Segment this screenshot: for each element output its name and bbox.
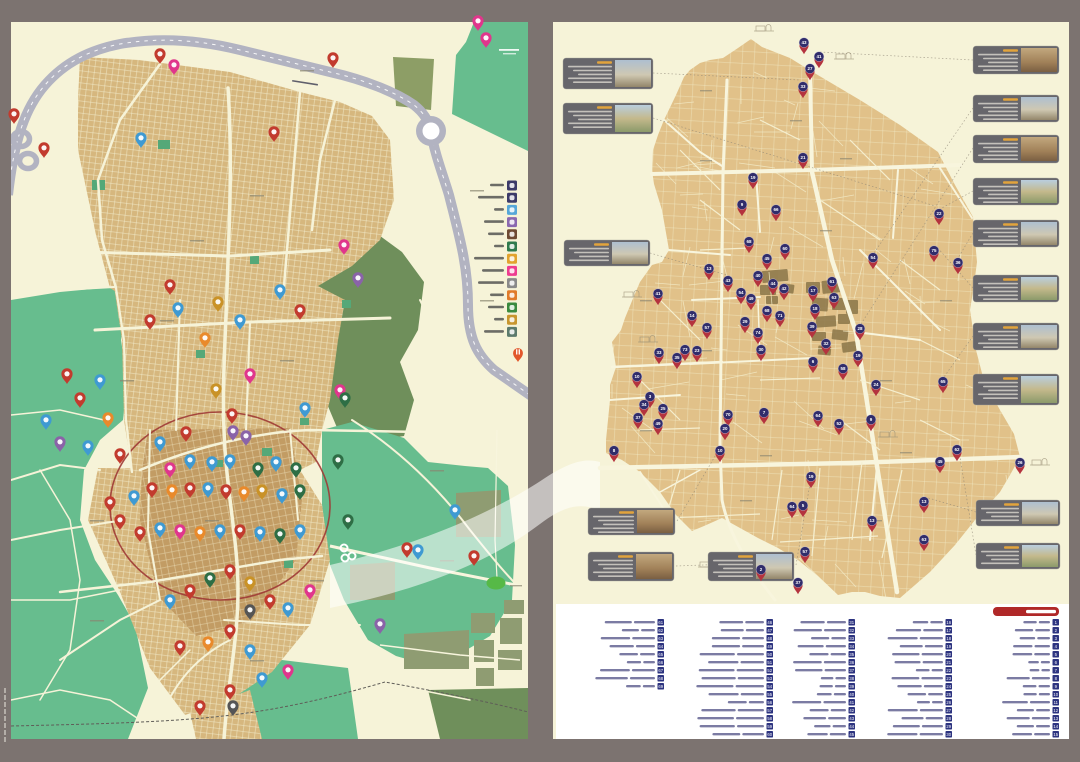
- svg-text:27: 27: [946, 708, 951, 713]
- svg-text:13: 13: [921, 499, 927, 504]
- svg-text:10: 10: [717, 448, 723, 453]
- svg-text:44: 44: [770, 281, 776, 286]
- svg-text:53: 53: [767, 676, 772, 681]
- svg-text:49: 49: [767, 644, 772, 649]
- svg-text:68: 68: [746, 239, 752, 244]
- svg-text:61: 61: [829, 279, 835, 284]
- svg-text:19: 19: [750, 175, 756, 180]
- svg-text:33: 33: [656, 350, 662, 355]
- svg-text:30: 30: [946, 732, 951, 737]
- svg-text:48: 48: [767, 636, 772, 641]
- svg-text:21: 21: [800, 155, 806, 160]
- svg-text:39: 39: [809, 324, 815, 329]
- svg-text:52: 52: [767, 668, 772, 673]
- svg-text:60: 60: [782, 246, 788, 251]
- svg-text:14: 14: [1053, 724, 1058, 729]
- svg-text:42: 42: [849, 708, 854, 713]
- svg-text:43: 43: [801, 40, 807, 45]
- svg-text:42: 42: [781, 286, 787, 291]
- svg-text:57: 57: [767, 708, 772, 713]
- svg-text:56: 56: [767, 700, 772, 705]
- svg-text:68: 68: [658, 676, 663, 681]
- svg-text:50: 50: [767, 652, 772, 657]
- svg-text:66: 66: [773, 207, 779, 212]
- svg-text:34: 34: [641, 402, 647, 407]
- svg-text:22: 22: [936, 211, 942, 216]
- svg-text:41: 41: [849, 700, 854, 705]
- svg-text:40: 40: [849, 692, 854, 697]
- svg-text:63: 63: [658, 636, 663, 641]
- svg-text:16: 16: [946, 620, 951, 625]
- svg-text:37: 37: [849, 668, 854, 673]
- svg-text:14: 14: [689, 313, 695, 318]
- svg-text:29: 29: [946, 724, 951, 729]
- svg-text:62: 62: [954, 447, 960, 452]
- svg-text:36: 36: [849, 660, 854, 665]
- svg-text:19: 19: [855, 353, 861, 358]
- svg-text:19: 19: [946, 644, 951, 649]
- svg-text:32: 32: [823, 341, 829, 346]
- svg-text:54: 54: [870, 255, 876, 260]
- svg-text:19: 19: [808, 474, 814, 479]
- svg-text:15: 15: [1053, 732, 1058, 737]
- svg-text:49: 49: [748, 296, 754, 301]
- svg-text:63: 63: [831, 295, 837, 300]
- svg-text:28: 28: [946, 716, 951, 721]
- svg-text:37: 37: [795, 580, 801, 585]
- svg-text:41: 41: [816, 54, 822, 59]
- svg-text:64: 64: [789, 504, 795, 509]
- svg-text:30: 30: [758, 347, 764, 352]
- svg-text:25: 25: [946, 692, 951, 697]
- svg-text:44: 44: [849, 724, 854, 729]
- svg-text:26: 26: [946, 700, 951, 705]
- svg-text:20: 20: [722, 426, 728, 431]
- svg-text:47: 47: [767, 628, 772, 633]
- svg-text:39: 39: [849, 684, 854, 689]
- svg-text:63: 63: [921, 537, 927, 542]
- svg-text:64: 64: [658, 644, 663, 649]
- svg-text:17: 17: [810, 288, 816, 293]
- svg-text:49: 49: [655, 421, 661, 426]
- svg-text:75: 75: [931, 248, 937, 253]
- svg-text:43: 43: [849, 716, 854, 721]
- svg-text:29: 29: [742, 319, 748, 324]
- svg-text:10: 10: [634, 374, 640, 379]
- svg-text:22: 22: [946, 668, 951, 673]
- svg-text:74: 74: [755, 330, 761, 335]
- svg-text:23: 23: [946, 676, 951, 681]
- svg-text:27: 27: [807, 66, 813, 71]
- svg-text:73: 73: [682, 347, 688, 352]
- svg-text:36: 36: [955, 260, 961, 265]
- svg-text:25: 25: [660, 406, 666, 411]
- svg-text:34: 34: [849, 644, 854, 649]
- svg-text:38: 38: [849, 676, 854, 681]
- svg-text:10: 10: [1053, 692, 1058, 697]
- svg-text:21: 21: [946, 660, 951, 665]
- svg-text:54: 54: [738, 290, 744, 295]
- svg-text:45: 45: [937, 459, 943, 464]
- svg-text:24: 24: [873, 382, 879, 387]
- svg-text:66: 66: [658, 660, 663, 665]
- svg-text:58: 58: [767, 716, 772, 721]
- svg-text:45: 45: [764, 256, 770, 261]
- svg-text:41: 41: [655, 291, 661, 296]
- svg-text:32: 32: [849, 628, 854, 633]
- svg-text:51: 51: [767, 660, 772, 665]
- svg-text:64: 64: [815, 413, 821, 418]
- svg-text:52: 52: [836, 421, 842, 426]
- svg-text:58: 58: [840, 366, 846, 371]
- svg-text:65: 65: [658, 652, 663, 657]
- svg-text:69: 69: [658, 684, 663, 689]
- svg-text:26: 26: [1017, 460, 1023, 465]
- svg-text:18: 18: [812, 306, 818, 311]
- svg-text:57: 57: [802, 549, 808, 554]
- svg-text:35: 35: [674, 355, 680, 360]
- svg-text:55: 55: [767, 692, 772, 697]
- svg-text:33: 33: [800, 84, 806, 89]
- svg-text:68: 68: [764, 308, 770, 313]
- svg-text:54: 54: [767, 684, 772, 689]
- svg-text:60: 60: [767, 732, 772, 737]
- svg-text:28: 28: [857, 326, 863, 331]
- svg-text:17: 17: [946, 628, 951, 633]
- svg-text:13: 13: [869, 518, 875, 523]
- svg-text:62: 62: [658, 628, 663, 633]
- svg-text:12: 12: [1053, 708, 1058, 713]
- svg-text:35: 35: [849, 652, 854, 657]
- svg-text:18: 18: [946, 636, 951, 641]
- svg-text:65: 65: [940, 379, 946, 384]
- svg-text:57: 57: [704, 325, 710, 330]
- svg-text:61: 61: [658, 620, 663, 625]
- svg-text:13: 13: [706, 266, 712, 271]
- svg-text:31: 31: [849, 620, 854, 625]
- svg-text:70: 70: [725, 412, 731, 417]
- svg-text:23: 23: [694, 348, 700, 353]
- svg-text:20: 20: [946, 652, 951, 657]
- svg-text:59: 59: [767, 724, 772, 729]
- svg-text:13: 13: [1053, 716, 1058, 721]
- svg-text:67: 67: [658, 668, 663, 673]
- svg-text:11: 11: [1054, 700, 1059, 705]
- svg-text:40: 40: [755, 273, 761, 278]
- svg-text:33: 33: [849, 636, 854, 641]
- svg-text:45: 45: [849, 732, 854, 737]
- svg-text:46: 46: [767, 620, 772, 625]
- svg-text:24: 24: [946, 684, 951, 689]
- svg-text:43: 43: [725, 278, 731, 283]
- svg-text:37: 37: [635, 415, 641, 420]
- svg-text:71: 71: [777, 313, 783, 318]
